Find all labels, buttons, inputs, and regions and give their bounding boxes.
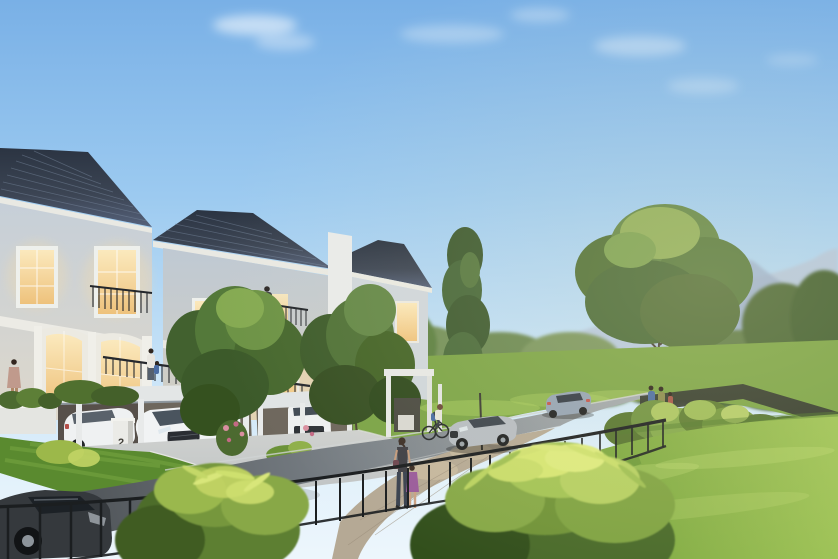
estate-render-image: 2 [0,0,838,559]
sunlight-overlay [0,0,838,559]
estate-render: 2 [0,0,838,559]
